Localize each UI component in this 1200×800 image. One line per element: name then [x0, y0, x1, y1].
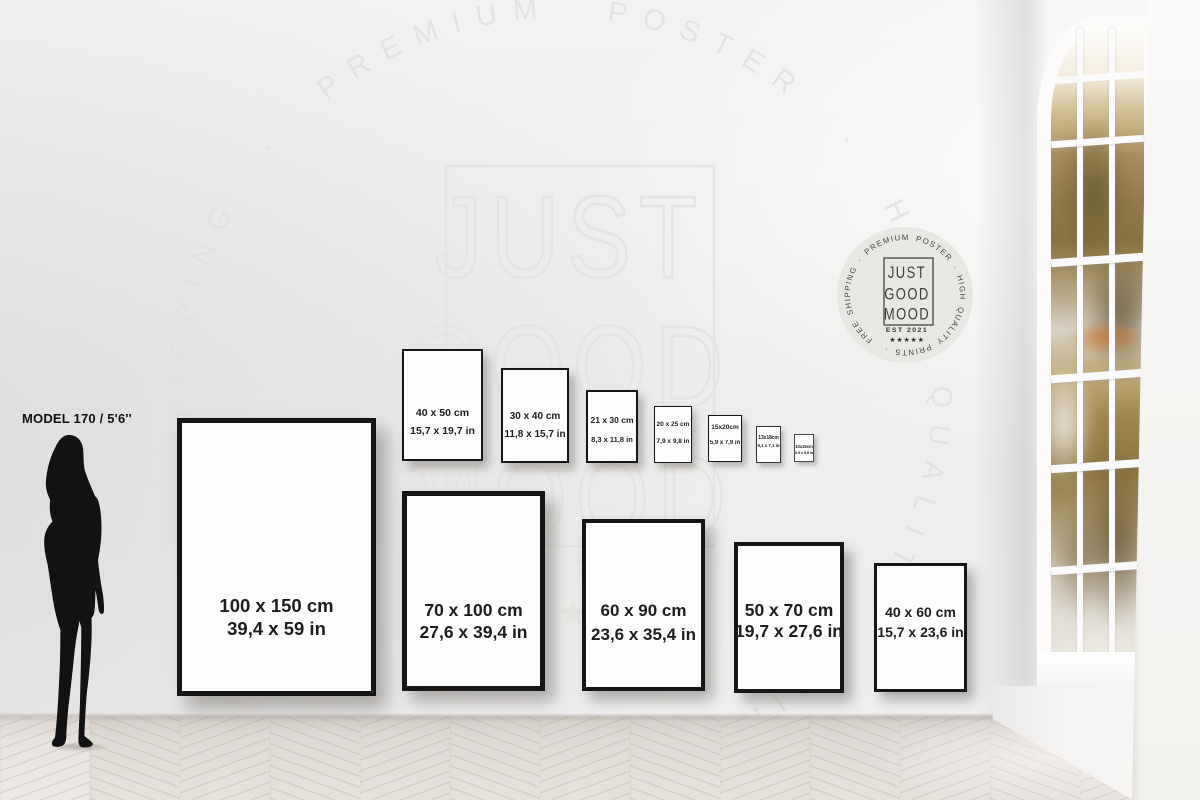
svg-text:★★★★★: ★★★★★ [889, 335, 924, 344]
svg-text:MOOD: MOOD [884, 306, 930, 324]
svg-text:EST 2021: EST 2021 [886, 327, 928, 334]
svg-text:JUST: JUST [435, 173, 706, 302]
svg-text:GOOD: GOOD [884, 286, 930, 304]
svg-text:JUST: JUST [888, 265, 926, 283]
